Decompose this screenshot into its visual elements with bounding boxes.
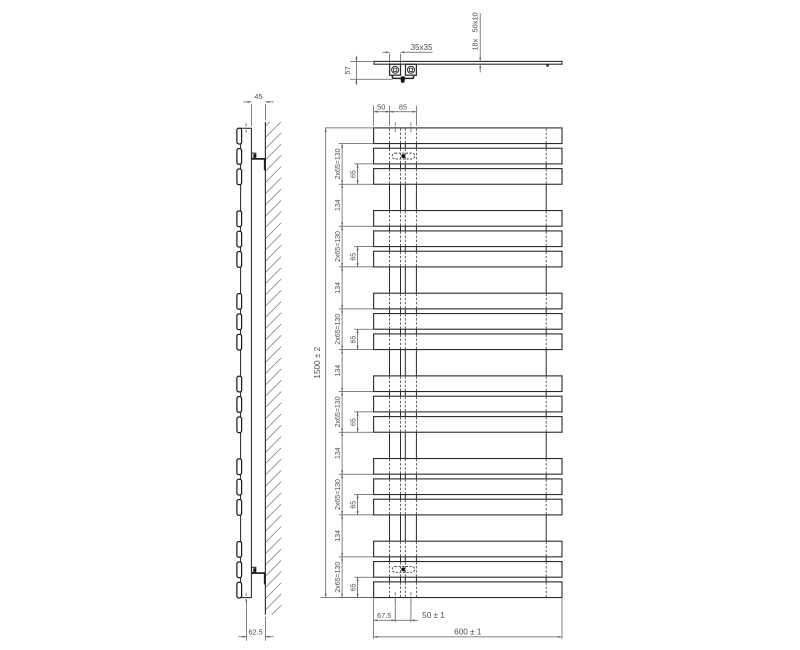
svg-text:2x65=130: 2x65=130 — [335, 562, 342, 593]
svg-text:600 ± 1: 600 ± 1 — [454, 628, 482, 637]
svg-text:2x65=130: 2x65=130 — [335, 479, 342, 510]
svg-text:35x35: 35x35 — [411, 43, 433, 52]
svg-text:62.5: 62.5 — [248, 627, 262, 636]
svg-text:2x65=130: 2x65=130 — [335, 396, 342, 427]
svg-text:134: 134 — [335, 530, 342, 542]
svg-text:50 ± 1: 50 ± 1 — [422, 611, 445, 620]
svg-text:65: 65 — [351, 418, 358, 426]
svg-text:2x65=130: 2x65=130 — [335, 148, 342, 179]
svg-text:65: 65 — [351, 335, 358, 343]
svg-text:65: 65 — [351, 501, 358, 509]
svg-text:134: 134 — [335, 199, 342, 211]
svg-text:45: 45 — [254, 92, 262, 101]
svg-text:65: 65 — [351, 170, 358, 178]
svg-text:134: 134 — [335, 447, 342, 459]
svg-text:67.5: 67.5 — [377, 611, 391, 620]
svg-text:57: 57 — [343, 66, 352, 74]
svg-text:2x65=130: 2x65=130 — [335, 231, 342, 262]
svg-text:18x 50x10: 18x 50x10 — [471, 12, 480, 50]
svg-text:134: 134 — [335, 365, 342, 377]
svg-text:65: 65 — [351, 253, 358, 261]
svg-text:2x65=130: 2x65=130 — [335, 314, 342, 345]
svg-text:50: 50 — [377, 102, 385, 111]
svg-text:65: 65 — [351, 583, 358, 591]
svg-text:85: 85 — [399, 102, 407, 111]
svg-text:134: 134 — [335, 282, 342, 294]
svg-text:1500 ± 2: 1500 ± 2 — [313, 346, 322, 378]
